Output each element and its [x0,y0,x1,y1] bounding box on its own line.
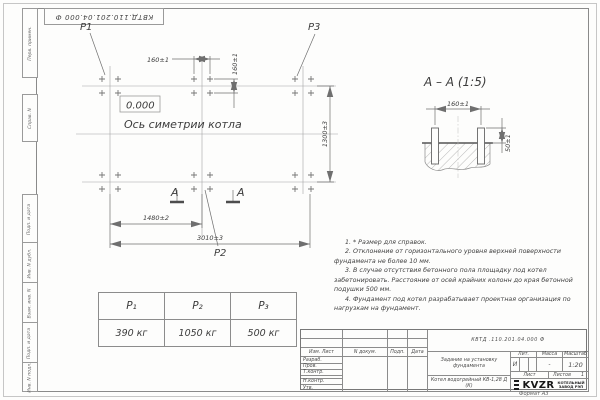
tb-product-name: Котел водогрейный КВ-1,28 Д (К) [428,376,511,391]
tb-row-utv: Утв. [301,385,343,391]
load-header-p2: P₂ [165,293,231,320]
format-a3-label: Формат А3 [519,391,549,397]
section-title: А – А (1:5) [423,75,487,89]
note-4: 4. Фундамент под котел разрабатывает про… [334,295,587,314]
margin-field-label: Подп. и дата [28,203,33,234]
margin-field-sprav-n: Справ. N [22,94,38,142]
tb-col-data: Дата [408,348,428,357]
margin-field-inv-dubl: Инв. N дубл. [22,242,38,284]
margin-field-podp-data-1: Подп. и дата [22,194,38,244]
margin-field-inv-podl: Инв. N подл. [22,362,38,392]
tb-mass-value: - [537,358,563,372]
kvzr-logo-icon [514,380,519,390]
tb-sign-col-dokum [343,357,388,391]
foundation-plan-view: P1 P3 P2 160±1 160±1 1300±3 1480±2 [68,18,348,268]
drawing-sheet: Перв. примен. Справ. N Подп. и дата Инв.… [0,0,600,400]
load-header-p3: P₃ [231,293,297,320]
plan-point-p1-label: P1 [80,22,92,33]
tb-col-n-dokum: N докум. [343,348,388,357]
dim-3010-label: 3010±3 [197,234,223,242]
tb-empty-cell [343,339,388,348]
section-dim-160-label: 160±1 [447,100,469,108]
tb-doc-title: Задание на установку фундамента [428,352,511,376]
tb-empty-cell [301,339,343,348]
symmetry-axis-label: Ось симетрии котла [124,118,242,131]
margin-field-perv-primen: Перв. примен. [22,8,38,78]
margin-field-label: Подп. и дата [28,327,33,358]
tb-empty-cell [343,330,388,339]
tb-doc-number: КВТД .110.201.04.000 Ф [428,330,588,352]
load-table-header-row: P₁ P₂ P₃ [99,293,297,320]
elevation-value: 0.000 [126,101,155,112]
margin-field-label: Инв. N дубл. [28,248,33,278]
dim-1300-label: 1300±3 [321,121,329,147]
tb-logo-cell: KVZR КОТЕЛЬНЫЙ ЗАВОД РЭП [511,379,588,391]
tb-sign-col-podp [388,357,408,391]
tb-lit-value: И [511,358,520,372]
load-table-value-row: 390 кг 1050 кг 500 кг [99,320,297,347]
section-letter-left: А [170,186,179,199]
tb-col-izm-list: Изм. Лист [301,348,343,357]
load-header-p1: P₁ [99,293,165,320]
kvzr-logo-caption: КОТЕЛЬНЫЙ ЗАВОД РЭП [558,381,585,390]
margin-field-label: Взам. инв. N [28,288,33,318]
dim-160-vertical-label: 160±1 [231,53,239,75]
section-dim-160-lines [426,106,490,125]
tb-sheets-cell: Листов 1 [549,372,588,379]
point-leader-lines [90,33,315,246]
tb-empty-cell [388,330,408,339]
section-cut-marks [170,190,240,202]
section-a-a-view: А – А (1:5) 160±1 50±1 [398,66,588,194]
plan-centerlines [76,62,338,236]
tb-sheet-label: Лист [511,372,549,379]
technical-notes: 1. * Размер для справок. 2. Отклонение о… [334,238,587,314]
dim-160-vertical-lines [214,79,238,108]
note-2: 2. Отклонение от горизонтального уровня … [334,247,587,266]
margin-field-podp-data-2: Подп. и дата [22,322,38,364]
load-value-p3: 500 кг [231,320,297,347]
plan-point-p2-label: P2 [214,248,226,259]
section-letter-right: А [236,186,245,199]
dim-1480-label: 1480±2 [143,214,169,222]
margin-field-vzam-inv: Взам. инв. N [22,282,38,324]
margin-field-label: Справ. N [28,107,33,128]
tb-col-podp: Подп. [388,348,408,357]
tb-sign-col-data [408,357,428,391]
dim-160-horizontal-label: 160±1 [147,56,169,64]
tb-empty-cell [408,330,428,339]
section-dim-50-label: 50±1 [504,134,512,152]
load-table: P₁ P₂ P₃ 390 кг 1050 кг 500 кг [98,292,297,347]
tb-empty-cell [388,339,408,348]
margin-field-label: Инв. N подл. [28,362,33,392]
anchor-bolt-right [478,128,485,164]
tb-sheets-label: Листов [553,373,571,378]
title-block: Изм. Лист N докум. Подп. Дата Разраб. Пр… [300,329,587,390]
tb-empty-cell [408,339,428,348]
tb-lit-empty-1 [520,358,529,372]
plan-point-p3-label: P3 [308,22,320,33]
tb-lit-empty-2 [529,358,537,372]
kvzr-logo-text: KVZR [522,380,554,391]
tb-row-razrab: Разраб. [301,357,343,364]
note-3: 3. В случае отсутствия бетонного пола пл… [334,266,587,294]
tb-empty-cell [301,330,343,339]
tb-scale-value: 1:20 [563,358,588,372]
load-value-p1: 390 кг [99,320,165,347]
note-1: 1. * Размер для справок. [334,238,587,247]
load-value-p2: 1050 кг [165,320,231,347]
tb-sheets-value: 1 [581,373,584,378]
margin-field-label: Перв. примен. [28,26,33,61]
anchor-bolt-left [432,128,439,164]
dim-160-horizontal-lines [172,56,220,74]
